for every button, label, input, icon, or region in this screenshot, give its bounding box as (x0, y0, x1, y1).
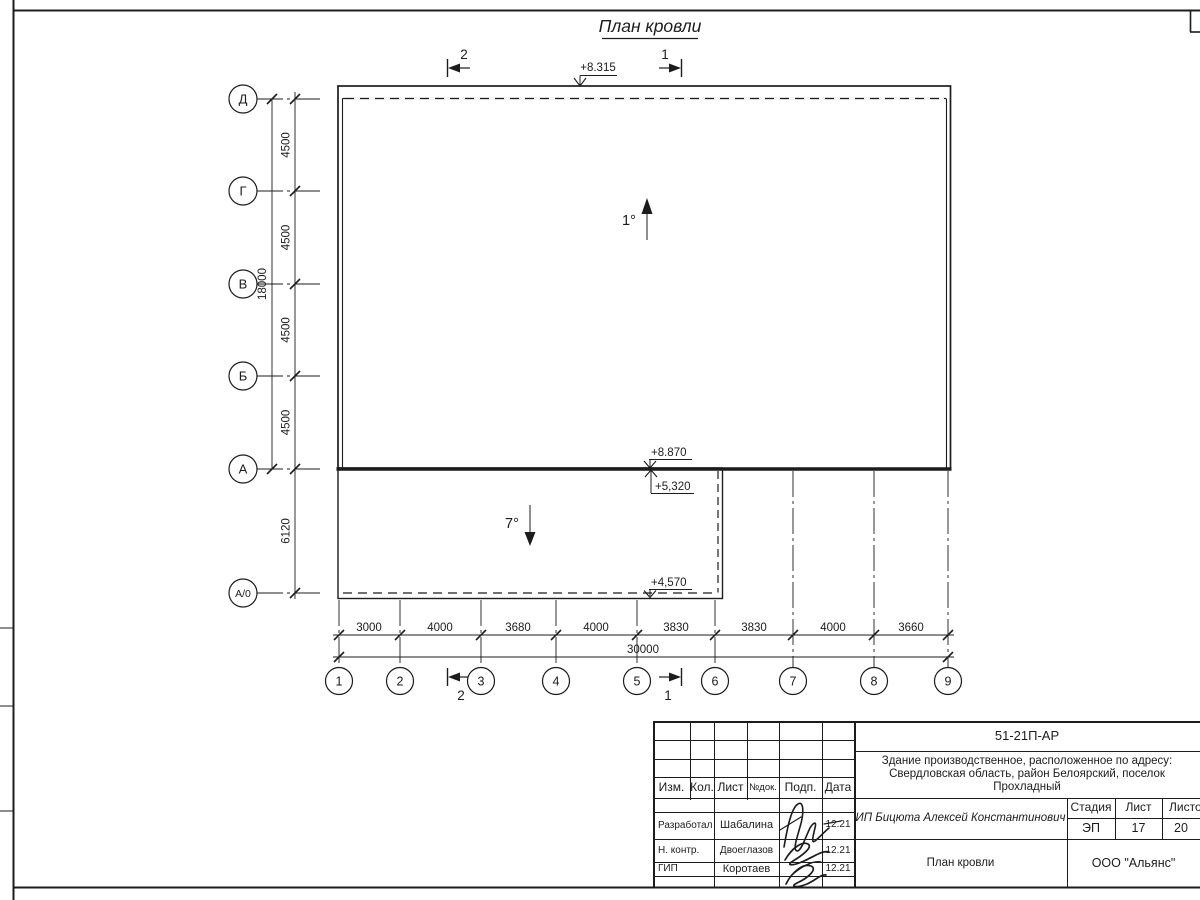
svg-text:4000: 4000 (583, 622, 609, 634)
svg-text:+8.315: +8.315 (580, 62, 616, 74)
svg-text:3830: 3830 (741, 622, 767, 634)
tb-drawing-name: План кровли (854, 839, 1067, 888)
svg-text:4500: 4500 (281, 225, 293, 251)
tb-role-gip: ГИП (655, 862, 717, 876)
tb-doc-number: 51-21П-АР (854, 721, 1200, 751)
svg-text:А/0: А/0 (235, 588, 251, 600)
svg-text:3: 3 (478, 675, 485, 689)
sheet-title: План кровли (599, 16, 702, 39)
axes-left: Д Г В Б А А/0 (229, 85, 322, 607)
tb-col-list: Лист (714, 778, 747, 798)
svg-text:1: 1 (664, 688, 672, 703)
page-title: План кровли (599, 16, 702, 36)
tb-name-gip: Коротаев (714, 862, 779, 876)
tb-name-checker: Двоеглазов (714, 839, 779, 862)
tb-col-podp: Подп. (779, 778, 822, 798)
svg-text:9: 9 (945, 675, 952, 689)
svg-text:3830: 3830 (663, 622, 689, 634)
section-marker-bottom-1: 1 (659, 668, 682, 703)
axes-bottom: 1 2 3 4 5 6 7 8 9 (326, 668, 962, 695)
tb-sheet-label: Лист (1115, 798, 1162, 818)
section-marker-bottom-2: 2 (448, 668, 471, 703)
svg-text:1: 1 (661, 47, 669, 62)
svg-text:4: 4 (553, 675, 560, 689)
elevation-mark-roof-top: +8.315 (574, 62, 617, 86)
dimension-left: 18000 4500 4500 4500 4500 6120 (257, 92, 300, 599)
svg-text:2: 2 (397, 675, 404, 689)
tb-sheets-label: Листов (1166, 798, 1200, 818)
svg-text:3000: 3000 (356, 622, 382, 634)
svg-text:2: 2 (460, 47, 468, 62)
svg-text:6: 6 (712, 675, 719, 689)
dim-bottom-total: 30000 (627, 644, 659, 656)
dim-left-total: 18000 (257, 268, 269, 300)
tb-stage-label: Стадия (1067, 798, 1115, 818)
tb-company: ООО "Альянс" (1067, 839, 1200, 888)
tb-stage-value: ЭП (1067, 818, 1115, 839)
dim-annex-height: 6120 (281, 518, 293, 544)
svg-text:4000: 4000 (820, 622, 846, 634)
svg-text:2: 2 (457, 688, 465, 703)
svg-text:А: А (239, 462, 248, 477)
tb-col-izm: Изм. (653, 778, 690, 798)
section-marker-top-1: 1 (659, 47, 682, 77)
tb-sheets-value: 20 (1162, 818, 1200, 839)
svg-text:4500: 4500 (281, 132, 293, 158)
svg-text:4000: 4000 (427, 622, 453, 634)
svg-text:5: 5 (634, 675, 641, 689)
tb-col-data: Дата (822, 778, 854, 798)
svg-text:4500: 4500 (281, 317, 293, 343)
tb-date-gip: 12.21 (822, 862, 854, 876)
svg-text:Б: Б (239, 369, 248, 384)
slope-label-main: 1° (622, 213, 636, 229)
tb-role-checker: Н. контр. (655, 839, 717, 862)
svg-text:+8.870: +8.870 (651, 447, 687, 459)
svg-text:+5,320: +5,320 (655, 481, 691, 493)
tb-sheet-value: 17 (1115, 818, 1162, 839)
svg-text:Д: Д (239, 92, 248, 107)
svg-text:В: В (239, 277, 248, 292)
svg-text:8: 8 (871, 675, 878, 689)
dimension-bottom: 3000 4000 3680 4000 3830 3830 4000 3660 … (333, 622, 954, 662)
tb-date-checker: 12.21 (822, 839, 854, 862)
drawing-sheet: План кровли 1° 7° (0, 0, 1200, 900)
tb-col-ndok: №док. (747, 778, 779, 798)
svg-text:+4,570: +4,570 (651, 577, 687, 589)
tb-project-name: Здание производственное, расположенное п… (854, 751, 1200, 798)
svg-text:3660: 3660 (898, 622, 924, 634)
svg-text:7: 7 (790, 675, 797, 689)
tb-client: ИП Бицюта Алексей Константинович (854, 798, 1067, 839)
tb-date-developer: 12.21 (822, 815, 854, 835)
section-marker-top-2: 2 (448, 47, 471, 77)
main-roof-outline (337, 86, 952, 469)
tb-name-developer: Шабалина (714, 812, 779, 839)
svg-text:Г: Г (239, 184, 246, 199)
svg-text:3680: 3680 (505, 622, 531, 634)
svg-text:1: 1 (336, 675, 343, 689)
tb-col-kol: Кол. (690, 778, 714, 798)
tb-role-developer: Разработал (655, 812, 717, 839)
slope-label-annex: 7° (505, 516, 519, 532)
svg-text:4500: 4500 (281, 410, 293, 436)
